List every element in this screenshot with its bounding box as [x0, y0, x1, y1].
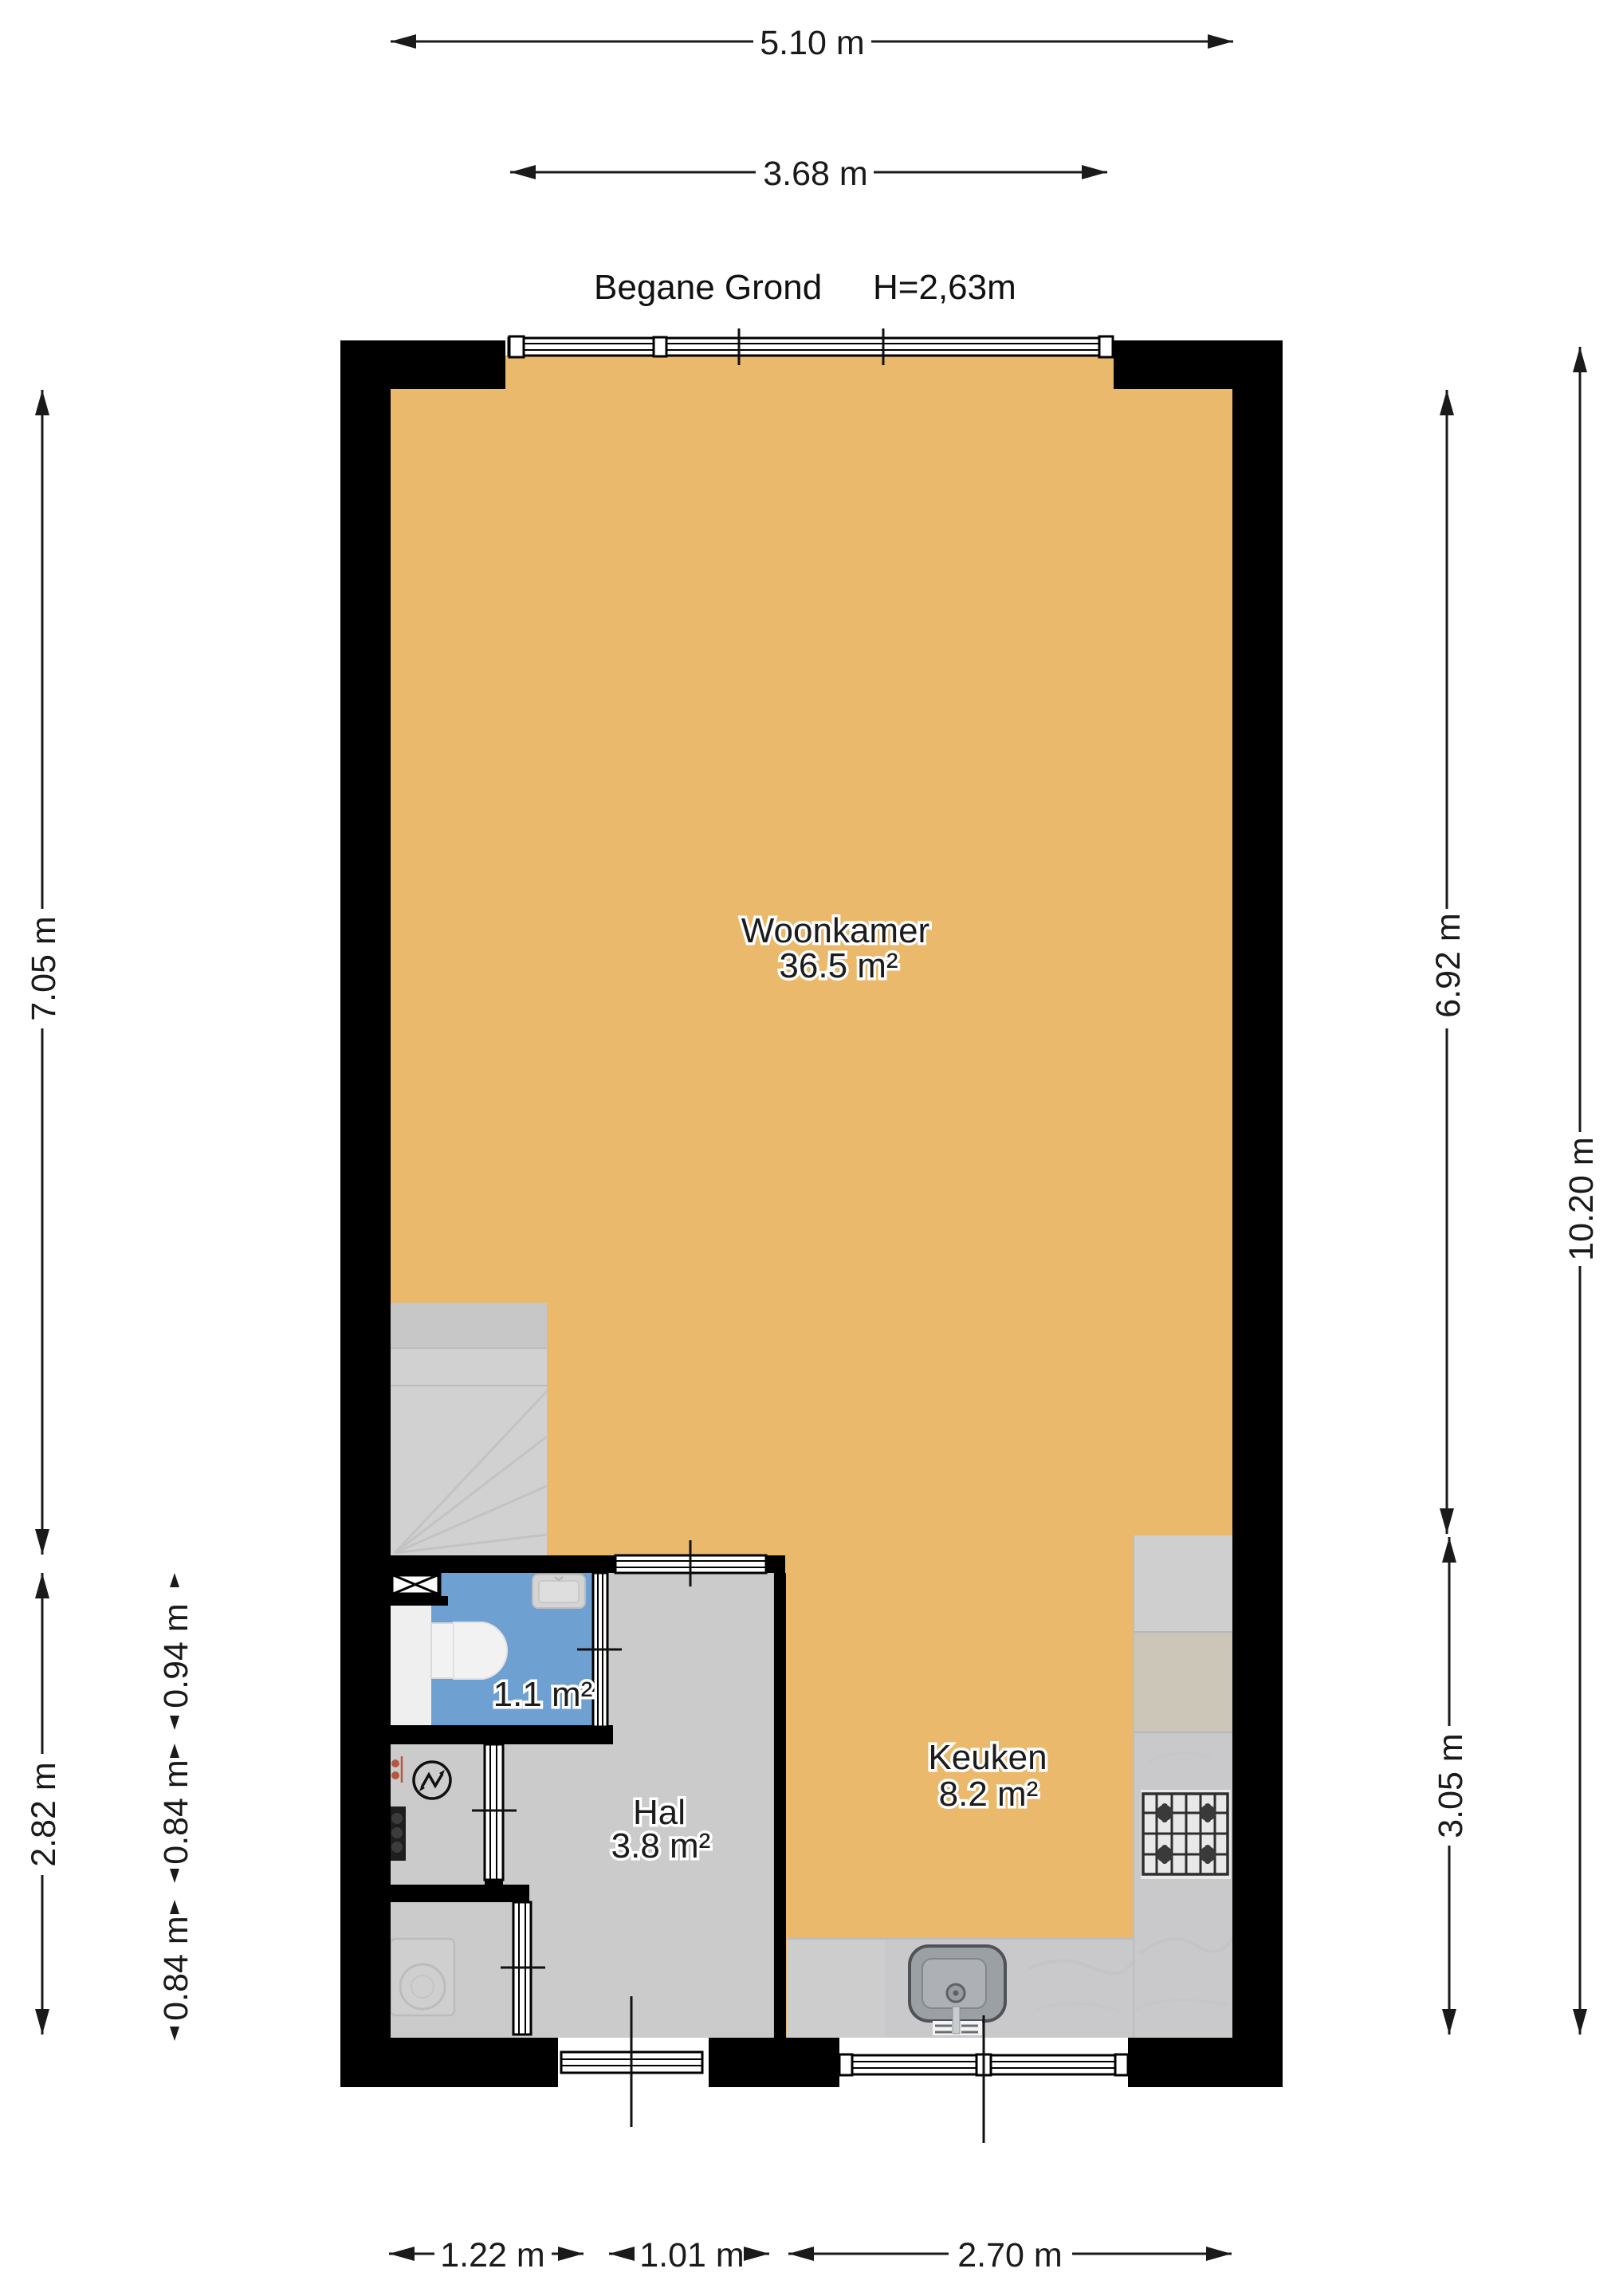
- svg-text:0.84 m: 0.84 m: [157, 1916, 195, 2020]
- svg-text:3.68 m: 3.68 m: [763, 155, 867, 193]
- svg-text:36.5 m²: 36.5 m²: [779, 946, 898, 985]
- svg-text:0.94 m: 0.94 m: [157, 1603, 195, 1708]
- svg-text:2.82 m: 2.82 m: [25, 1762, 63, 1866]
- svg-text:10.20 m: 10.20 m: [1562, 1137, 1601, 1260]
- svg-text:Begane Grond: Begane Grond: [594, 268, 822, 307]
- svg-text:1.1 m²: 1.1 m²: [493, 1675, 593, 1714]
- svg-text:Woonkamer: Woonkamer: [741, 911, 929, 950]
- svg-text:1.22 m: 1.22 m: [440, 2236, 544, 2274]
- svg-text:Keuken: Keuken: [928, 1738, 1047, 1777]
- svg-text:6.92 m: 6.92 m: [1429, 913, 1468, 1017]
- svg-text:3.8 m²: 3.8 m²: [611, 1826, 711, 1866]
- svg-text:1.01 m: 1.01 m: [639, 2236, 744, 2274]
- svg-text:3.05 m: 3.05 m: [1432, 1733, 1470, 1838]
- svg-text:H=2,63m: H=2,63m: [873, 268, 1016, 307]
- svg-text:5.10 m: 5.10 m: [760, 24, 864, 62]
- svg-text:2.70 m: 2.70 m: [957, 2236, 1062, 2274]
- svg-text:0.84 m: 0.84 m: [157, 1759, 195, 1864]
- svg-text:7.05 m: 7.05 m: [25, 916, 63, 1020]
- svg-text:8.2 m²: 8.2 m²: [939, 1775, 1039, 1814]
